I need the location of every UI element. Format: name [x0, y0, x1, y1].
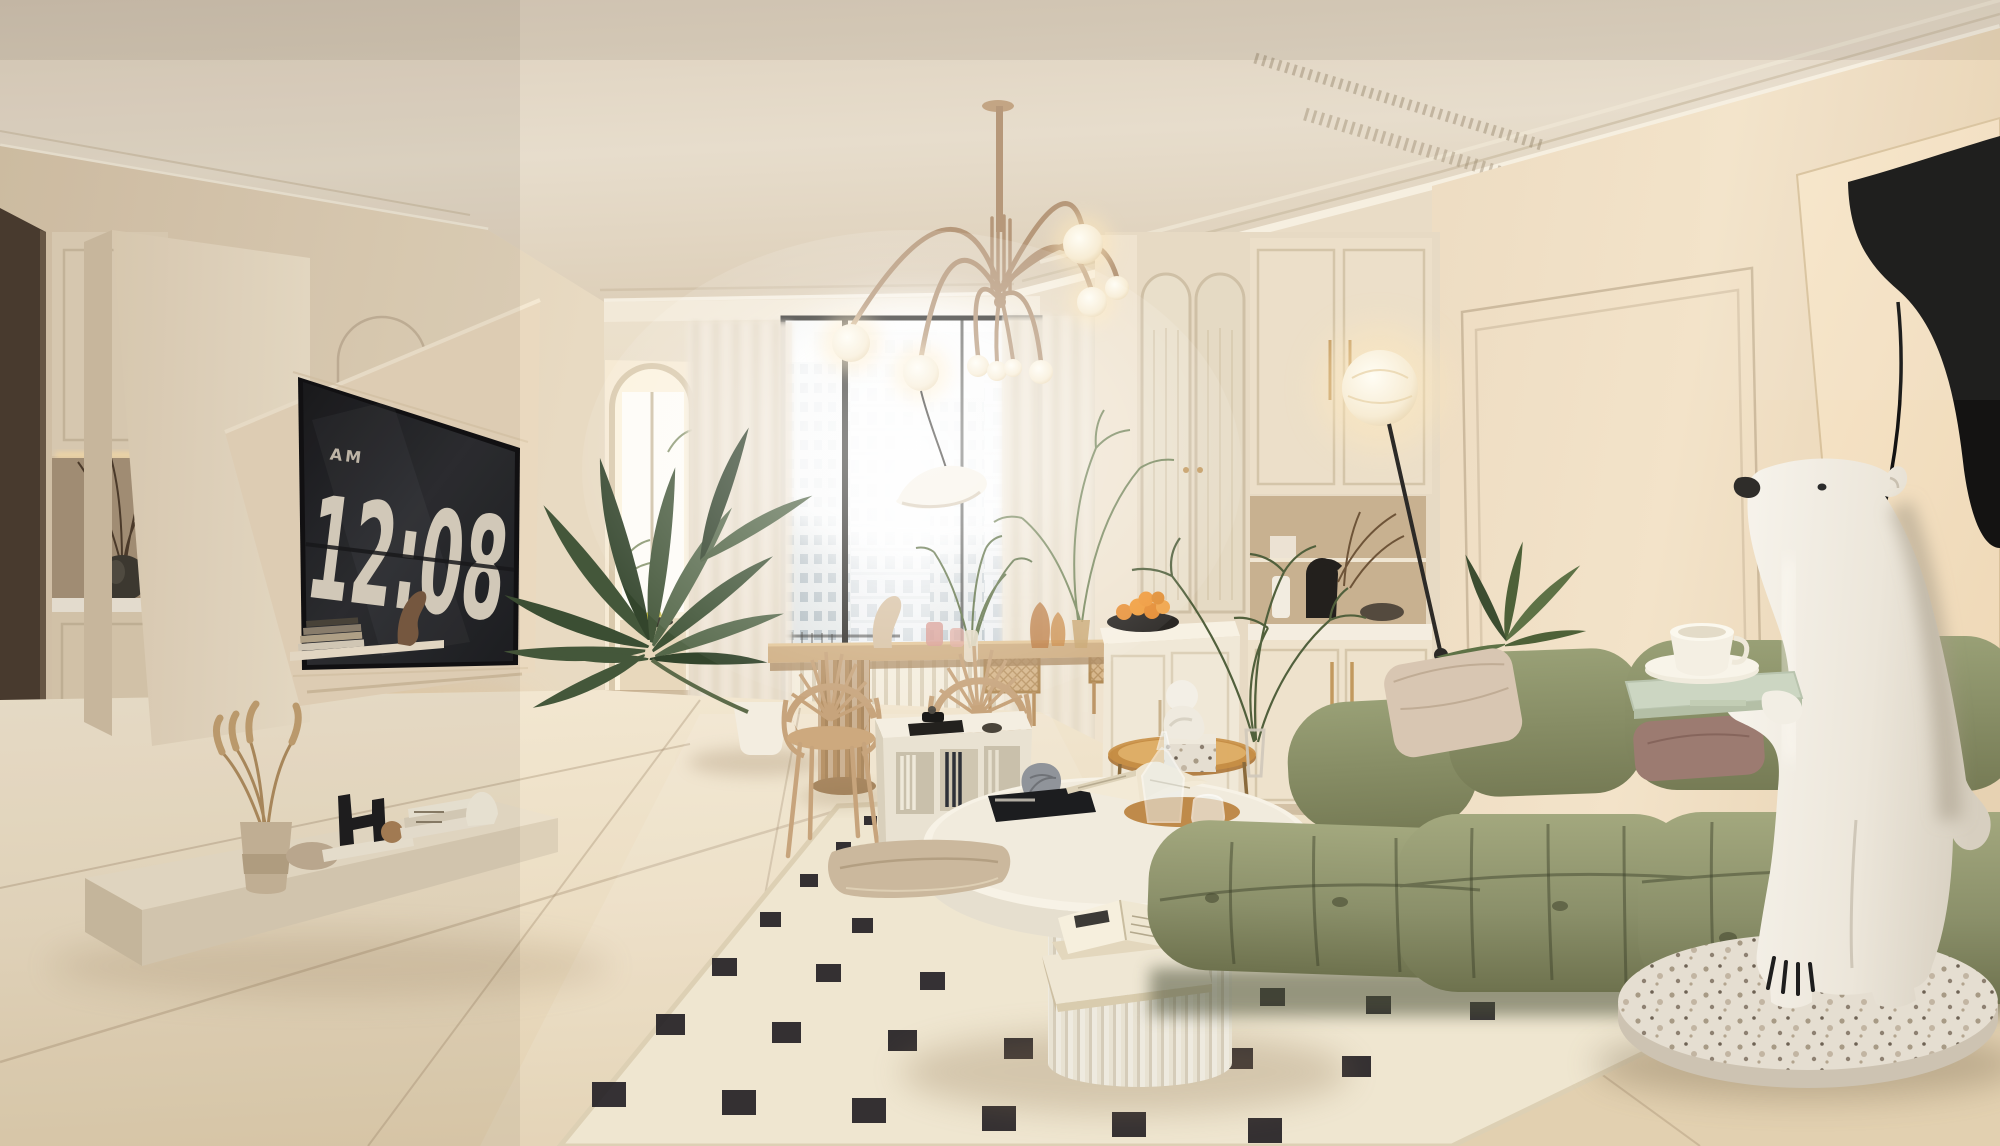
kitchen-counter	[1248, 624, 1432, 640]
bear-eye	[1818, 484, 1827, 491]
entry-door-dark	[0, 208, 46, 748]
living-room-photo: AM 12:08	[0, 0, 2000, 1146]
shelf-books	[298, 617, 364, 651]
room-render: AM 12:08	[0, 0, 2000, 1146]
open-shelf-niche	[1250, 496, 1426, 624]
